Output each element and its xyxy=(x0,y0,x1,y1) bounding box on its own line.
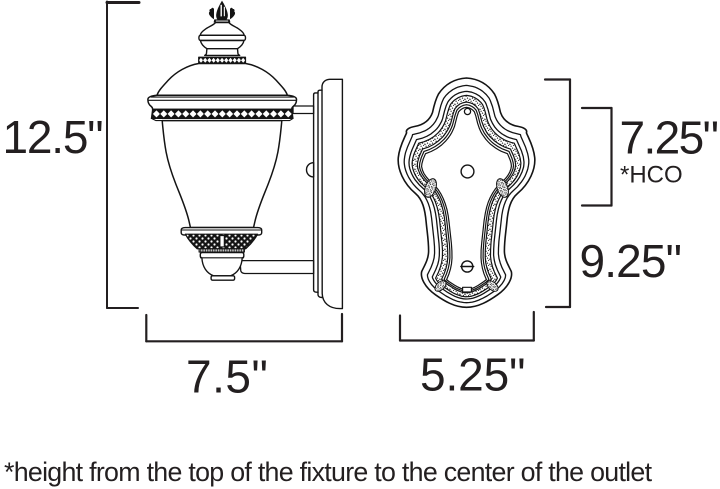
svg-text:7.5": 7.5" xyxy=(186,351,268,403)
svg-text:*HCO: *HCO xyxy=(620,162,683,189)
svg-text:5.25": 5.25" xyxy=(420,349,525,401)
svg-text:9.25": 9.25" xyxy=(580,235,682,287)
svg-text:*height from the top of the fi: *height from the top of the fixture to t… xyxy=(4,457,653,487)
svg-text:12.5": 12.5" xyxy=(3,111,103,163)
svg-text:7.25": 7.25" xyxy=(620,112,718,164)
